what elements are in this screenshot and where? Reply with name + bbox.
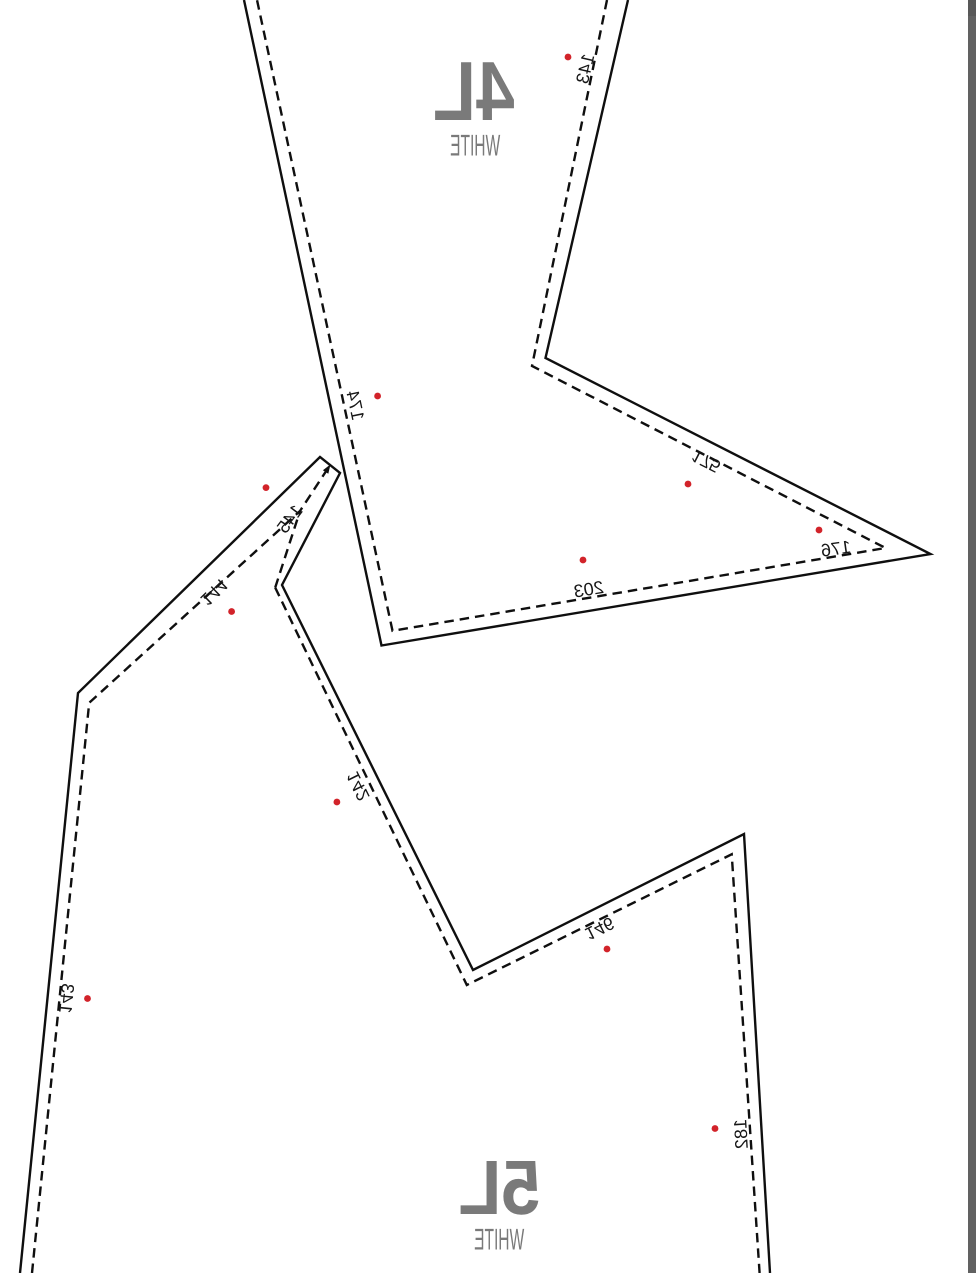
svg-text:WHITE: WHITE — [450, 129, 500, 162]
svg-text:182: 182 — [730, 1118, 752, 1149]
svg-text:4L: 4L — [433, 44, 515, 138]
svg-text:143: 143 — [55, 983, 78, 1015]
svg-text:176: 176 — [820, 537, 853, 561]
svg-text:5L: 5L — [459, 1145, 541, 1231]
svg-text:WHITE: WHITE — [474, 1224, 524, 1257]
